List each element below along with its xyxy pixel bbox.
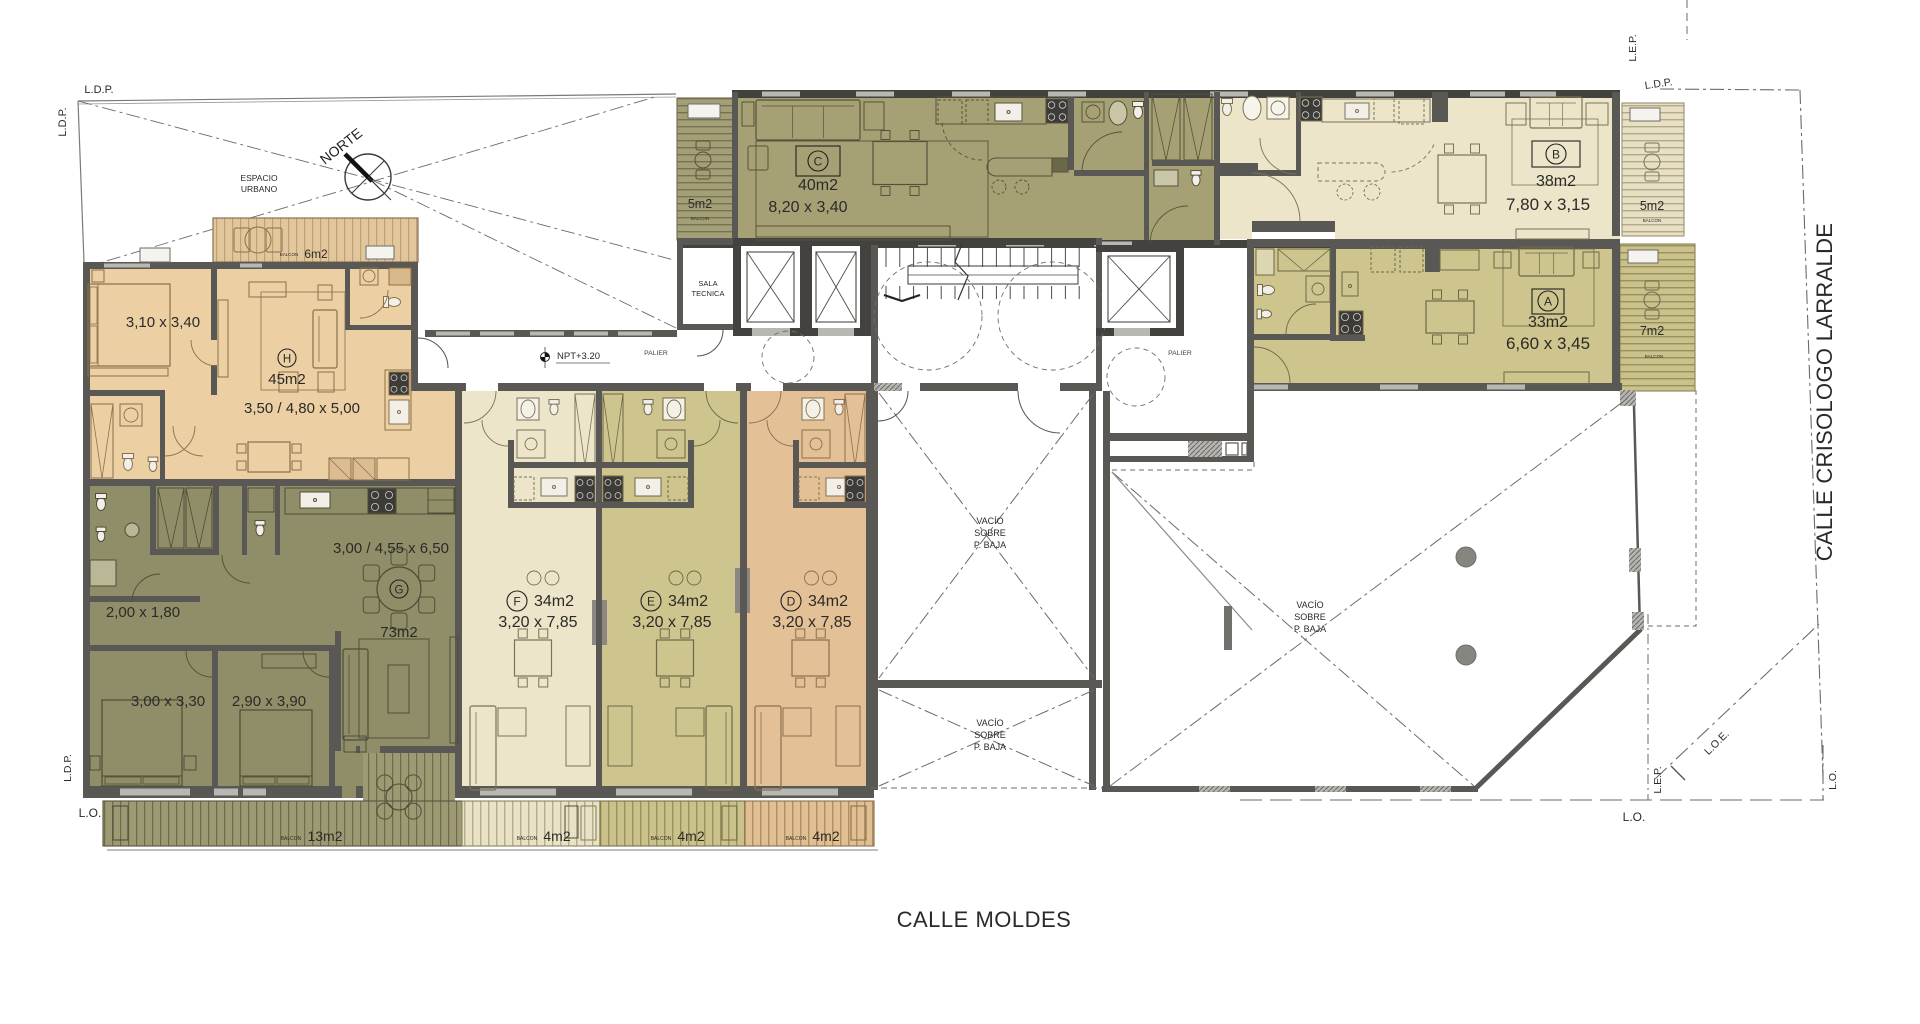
svg-text:4m2: 4m2 (677, 828, 704, 844)
svg-text:VACÍO: VACÍO (1296, 600, 1323, 610)
svg-text:2,90 x 3,90: 2,90 x 3,90 (232, 693, 306, 710)
svg-text:BALCON: BALCON (280, 252, 299, 257)
svg-text:BALCON: BALCON (517, 836, 538, 842)
svg-text:CALLE MOLDES: CALLE MOLDES (897, 907, 1072, 932)
svg-text:L.D.P.: L.D.P. (57, 107, 69, 136)
svg-text:40m2: 40m2 (798, 177, 838, 194)
svg-text:L.D.P.: L.D.P. (62, 754, 74, 782)
svg-text:B: B (1552, 148, 1560, 162)
svg-text:33m2: 33m2 (1528, 314, 1568, 331)
svg-text:7m2: 7m2 (1640, 324, 1664, 338)
svg-text:45m2: 45m2 (268, 371, 306, 388)
svg-text:BALCON: BALCON (281, 836, 302, 842)
svg-text:L.O.: L.O. (79, 806, 102, 820)
svg-text:PALIER: PALIER (1168, 350, 1192, 357)
svg-text:SALA: SALA (698, 279, 717, 288)
svg-text:3,20 x 7,85: 3,20 x 7,85 (498, 614, 577, 631)
svg-text:P. BAJA: P. BAJA (974, 540, 1006, 550)
svg-text:L.E.P.: L.E.P. (1627, 34, 1639, 61)
svg-text:BALCON: BALCON (691, 216, 710, 221)
svg-text:A: A (1544, 295, 1552, 309)
svg-text:URBANO: URBANO (241, 184, 278, 194)
svg-text:BALCON: BALCON (651, 836, 672, 842)
svg-text:G: G (395, 585, 404, 597)
svg-text:73m2: 73m2 (380, 624, 418, 641)
svg-text:3,20 x 7,85: 3,20 x 7,85 (632, 614, 711, 631)
svg-text:6m2: 6m2 (304, 247, 328, 261)
svg-text:L.E.P.: L.E.P. (1652, 766, 1664, 793)
svg-text:3,00 / 4,55 x 6,50: 3,00 / 4,55 x 6,50 (333, 540, 449, 557)
svg-text:BALCON: BALCON (1643, 218, 1662, 223)
svg-text:CALLE CRISOLOGO LARRALDE: CALLE CRISOLOGO LARRALDE (1812, 223, 1837, 562)
svg-text:4m2: 4m2 (812, 828, 839, 844)
svg-text:3,00 x 3,30: 3,00 x 3,30 (131, 693, 205, 710)
svg-text:P. BAJA: P. BAJA (1294, 624, 1326, 634)
svg-text:E: E (647, 595, 655, 609)
svg-text:F: F (513, 595, 520, 609)
svg-text:ESPACIO: ESPACIO (240, 173, 278, 183)
svg-text:VACÍO: VACÍO (976, 516, 1003, 526)
svg-text:SOBRE: SOBRE (974, 528, 1006, 538)
svg-text:3,50 / 4,80 x 5,00: 3,50 / 4,80 x 5,00 (244, 400, 360, 417)
svg-text:34m2: 34m2 (668, 593, 708, 610)
svg-text:BALCON: BALCON (786, 836, 807, 842)
svg-text:5m2: 5m2 (688, 197, 712, 211)
svg-text:3,10 x 3,40: 3,10 x 3,40 (126, 314, 200, 331)
svg-text:6,60 x 3,45: 6,60 x 3,45 (1506, 334, 1590, 353)
svg-text:BALCON: BALCON (1645, 354, 1664, 359)
svg-text:D: D (787, 595, 796, 609)
svg-text:3,20 x 7,85: 3,20 x 7,85 (772, 614, 851, 631)
svg-text:SOBRE: SOBRE (974, 730, 1006, 740)
svg-text:13m2: 13m2 (307, 828, 342, 844)
svg-text:L.O.: L.O. (1827, 770, 1839, 790)
svg-text:PALIER: PALIER (644, 350, 668, 357)
svg-text:8,20 x 3,40: 8,20 x 3,40 (768, 199, 847, 216)
svg-text:SOBRE: SOBRE (1294, 612, 1326, 622)
svg-text:38m2: 38m2 (1536, 173, 1576, 190)
svg-text:L.D.P.: L.D.P. (84, 84, 113, 96)
svg-text:2,00 x 1,80: 2,00 x 1,80 (106, 604, 180, 621)
svg-text:H: H (283, 354, 291, 366)
svg-text:34m2: 34m2 (808, 593, 848, 610)
svg-text:TECNICA: TECNICA (692, 289, 725, 298)
svg-text:C: C (814, 155, 823, 169)
svg-text:7,80 x 3,15: 7,80 x 3,15 (1506, 195, 1590, 214)
svg-text:VACÍO: VACÍO (976, 718, 1003, 728)
svg-text:NPT+3.20: NPT+3.20 (557, 351, 600, 362)
svg-text:P. BAJA: P. BAJA (974, 742, 1006, 752)
svg-text:34m2: 34m2 (534, 593, 574, 610)
svg-text:5m2: 5m2 (1640, 199, 1664, 213)
svg-text:L.O.: L.O. (1623, 810, 1646, 824)
svg-text:4m2: 4m2 (543, 828, 570, 844)
